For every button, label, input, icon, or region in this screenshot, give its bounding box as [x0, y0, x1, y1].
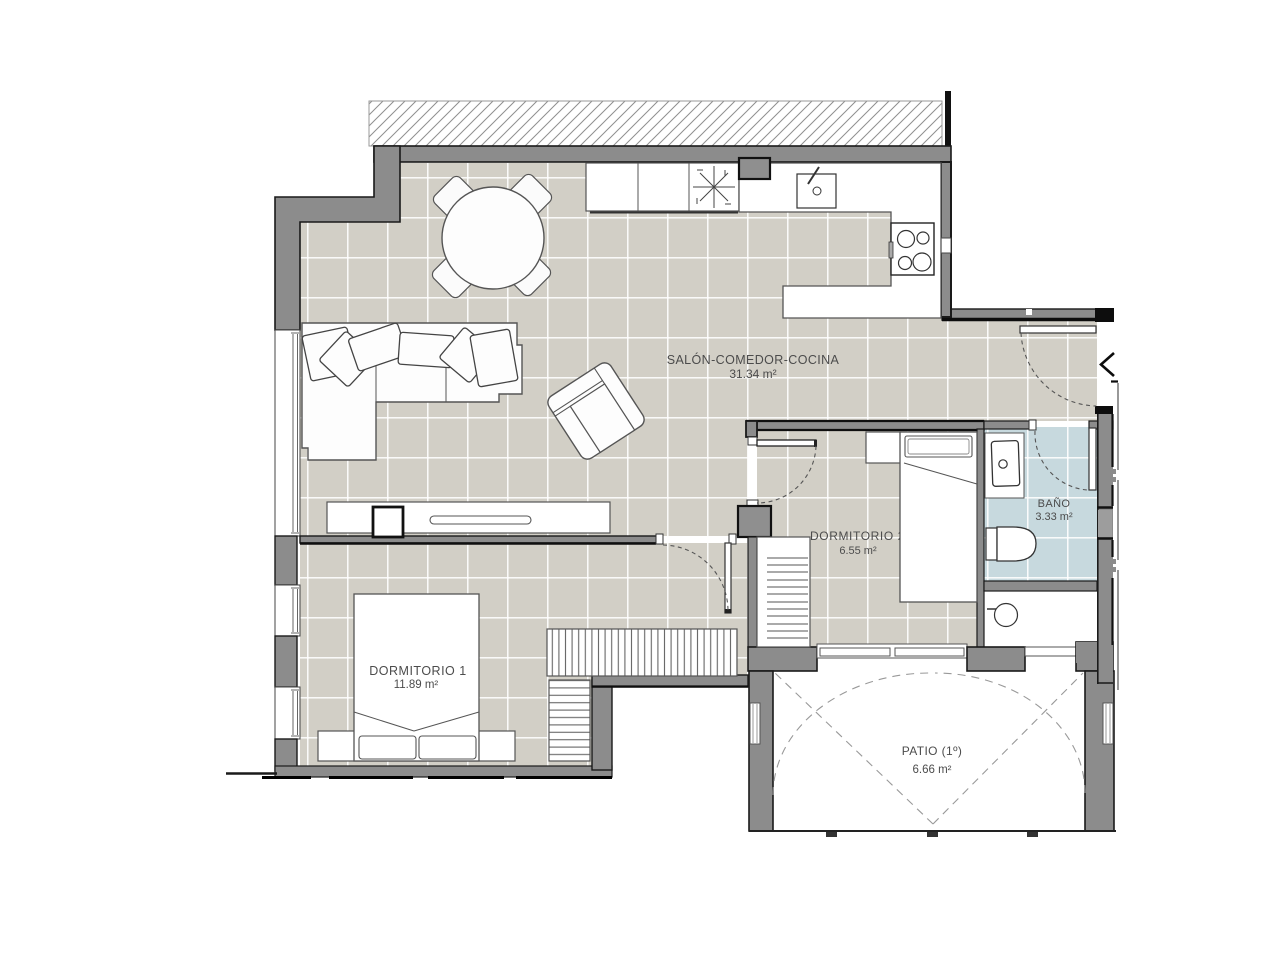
svg-text:6.55 m²: 6.55 m²	[839, 545, 877, 557]
svg-text:SALÓN-COMEDOR-COCINA: SALÓN-COMEDOR-COCINA	[667, 352, 840, 367]
svg-text:31.34 m²: 31.34 m²	[729, 367, 776, 381]
svg-text:BAÑO: BAÑO	[1038, 497, 1071, 510]
svg-text:DORMITORIO 1: DORMITORIO 1	[369, 664, 466, 678]
svg-text:3.33 m²: 3.33 m²	[1035, 511, 1073, 523]
svg-text:DORMITORIO 2: DORMITORIO 2	[810, 529, 905, 543]
svg-text:PATIO (1º): PATIO (1º)	[902, 744, 963, 758]
svg-text:6.66 m²: 6.66 m²	[913, 764, 952, 776]
svg-text:11.89 m²: 11.89 m²	[394, 679, 439, 691]
